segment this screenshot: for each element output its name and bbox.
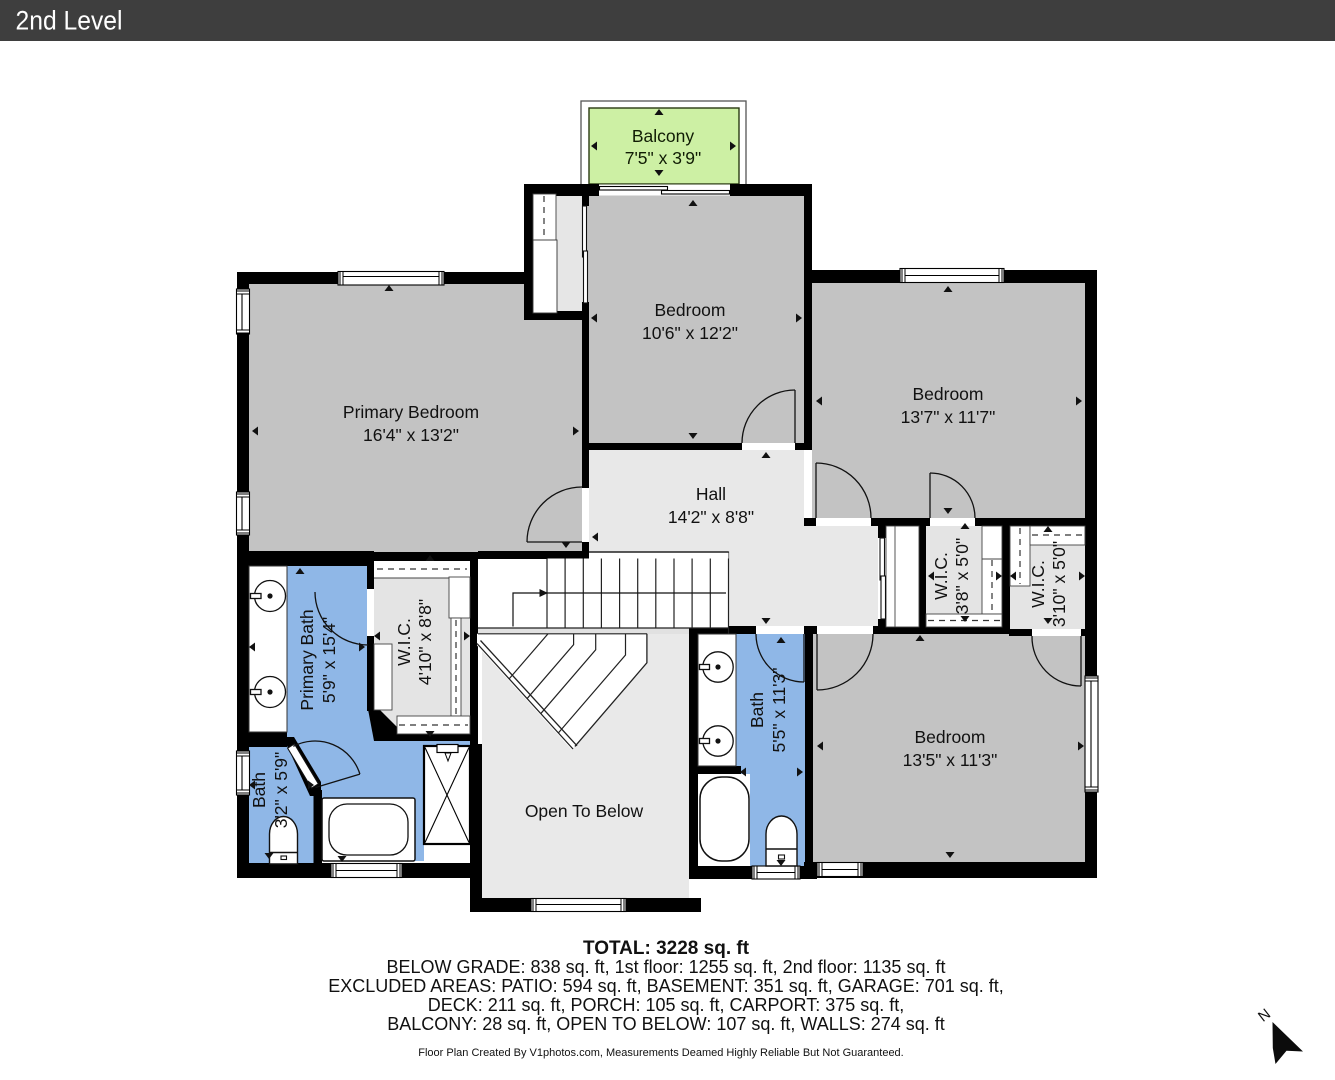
svg-text:BELOW GRADE: 838 sq. ft, 1st f: BELOW GRADE: 838 sq. ft, 1st floor: 1255… (387, 957, 946, 977)
svg-text:3'10" x 5'0": 3'10" x 5'0" (1049, 541, 1069, 627)
svg-text:W.I.C.: W.I.C. (394, 618, 414, 666)
svg-text:Floor Plan Created By V1photos: Floor Plan Created By V1photos.com, Meas… (418, 1047, 903, 1059)
svg-text:10'6" x 12'2": 10'6" x 12'2" (642, 323, 738, 343)
svg-text:Hall: Hall (696, 484, 726, 504)
svg-text:Primary Bedroom: Primary Bedroom (343, 402, 479, 422)
svg-text:Open To Below: Open To Below (525, 801, 644, 821)
svg-text:14'2" x 8'8": 14'2" x 8'8" (668, 507, 754, 527)
svg-text:EXCLUDED AREAS: PATIO: 594 sq.: EXCLUDED AREAS: PATIO: 594 sq. ft, BASEM… (328, 976, 1004, 996)
svg-text:2nd Level: 2nd Level (16, 6, 123, 36)
svg-text:5'9" x 15'4": 5'9" x 15'4" (319, 617, 339, 703)
svg-text:5'5" x 11'3": 5'5" x 11'3" (769, 668, 789, 753)
svg-text:Balcony: Balcony (632, 126, 695, 146)
svg-text:W.I.C.: W.I.C. (1028, 560, 1048, 608)
svg-text:Bath: Bath (747, 692, 767, 728)
svg-text:BALCONY: 28 sq. ft, OPEN TO BE: BALCONY: 28 sq. ft, OPEN TO BELOW: 107 s… (387, 1014, 945, 1034)
svg-text:TOTAL: 3228 sq. ft: TOTAL: 3228 sq. ft (583, 938, 750, 959)
svg-text:Primary Bath: Primary Bath (297, 609, 317, 710)
svg-text:3'8" x 5'0": 3'8" x 5'0" (952, 538, 972, 615)
svg-text:Bath: Bath (249, 772, 269, 808)
svg-text:4'10" x 8'8": 4'10" x 8'8" (415, 599, 435, 685)
svg-text:3'2" x 5'9": 3'2" x 5'9" (271, 752, 291, 829)
svg-text:13'7" x 11'7": 13'7" x 11'7" (901, 407, 996, 427)
svg-text:Bedroom: Bedroom (654, 300, 725, 320)
svg-text:16'4" x 13'2": 16'4" x 13'2" (363, 425, 459, 445)
svg-text:N: N (1255, 1006, 1274, 1026)
svg-text:Bedroom: Bedroom (914, 727, 985, 747)
svg-text:Bedroom: Bedroom (912, 384, 983, 404)
svg-text:7'5" x 3'9": 7'5" x 3'9" (625, 148, 702, 168)
svg-text:13'5" x 11'3": 13'5" x 11'3" (903, 750, 998, 770)
svg-text:DECK: 211 sq. ft, PORCH: 105 s: DECK: 211 sq. ft, PORCH: 105 sq. ft, CAR… (428, 995, 905, 1015)
